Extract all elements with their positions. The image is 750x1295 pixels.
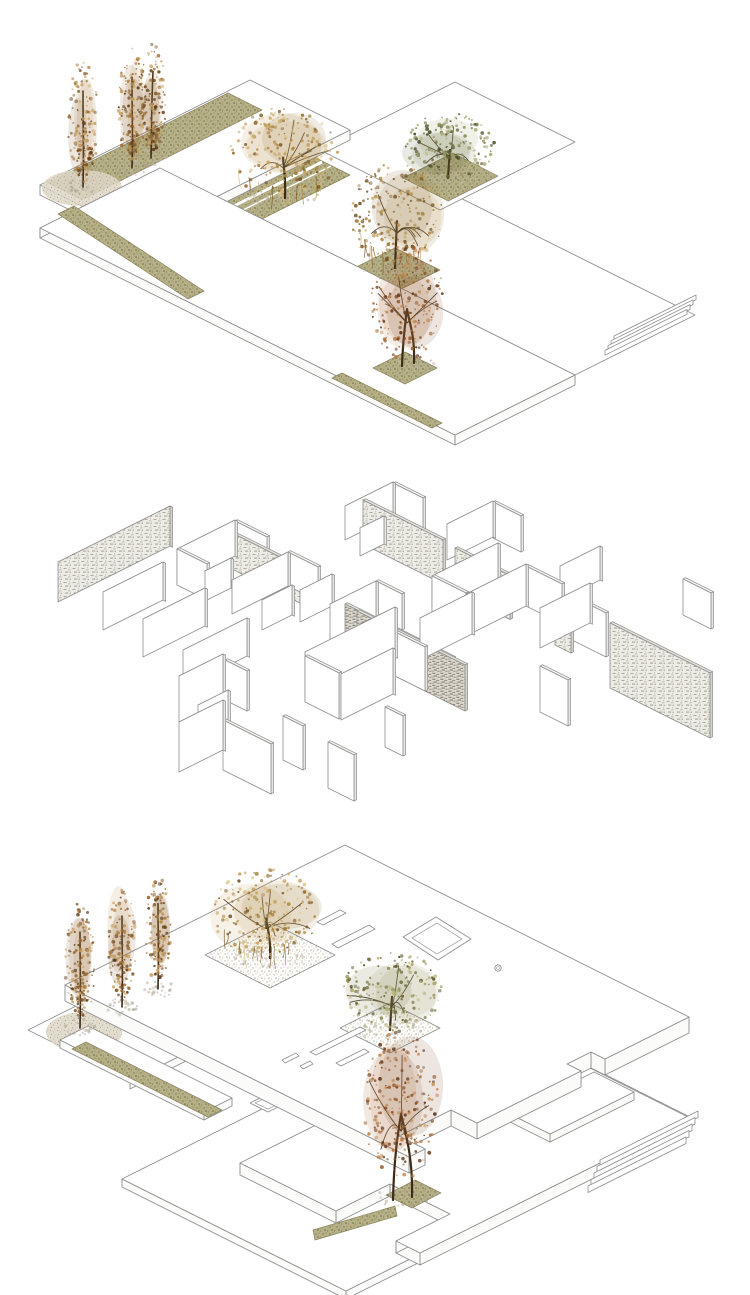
site-plan-panel: [40, 43, 696, 445]
exploded-walls-panel: [58, 482, 714, 801]
exploded-axonometric-diagram: [0, 0, 750, 1295]
roof-panel: [28, 845, 698, 1295]
diagram-stage: [0, 0, 750, 1295]
